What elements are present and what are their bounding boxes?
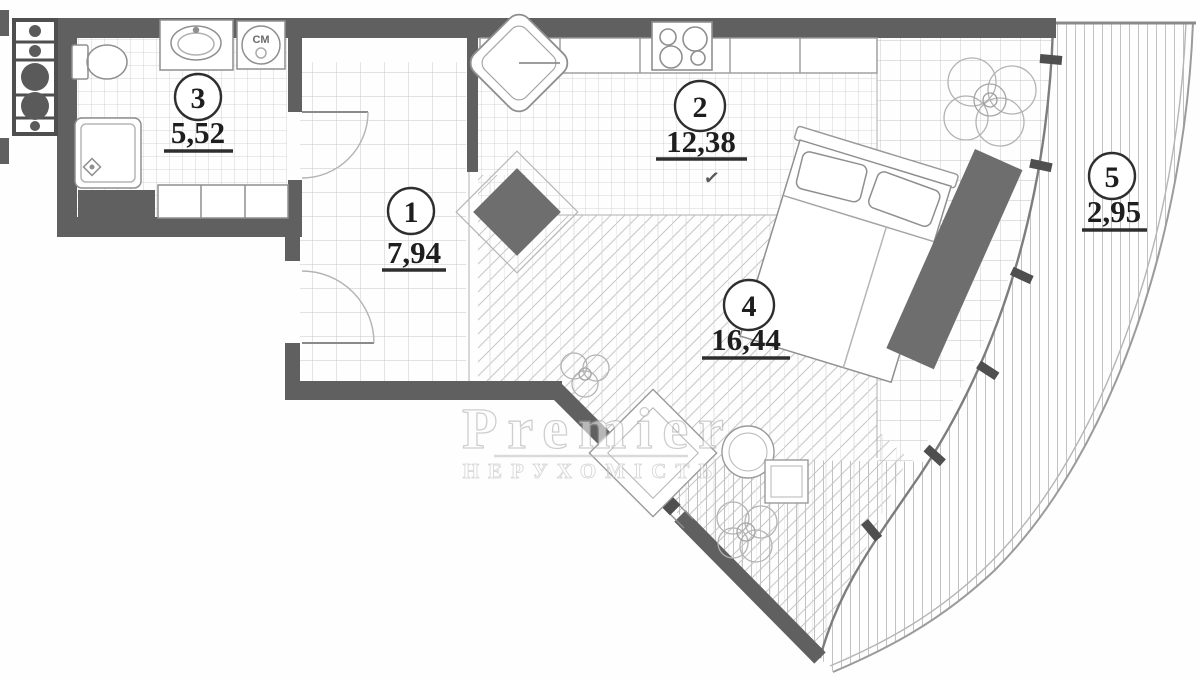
watermark-tagline: НЕРУХОМІСТЬ	[463, 459, 722, 483]
watermark-brand: Premier	[462, 396, 734, 461]
room-2-area: 12,38	[666, 124, 736, 159]
floor-plan-page: Premier НЕРУХОМІСТЬ 1 7,94 2 12,38 ✓ 3 5…	[0, 0, 1200, 680]
bathroom-wall-block	[78, 190, 155, 219]
vent-circle-large-2	[21, 92, 49, 120]
bathroom-right-wall-lower	[288, 180, 302, 237]
room-1-area: 7,94	[387, 235, 441, 270]
sink-vanity	[160, 20, 233, 70]
checkmark: ✓	[702, 167, 721, 190]
hallway-left-wall-upper	[285, 237, 300, 261]
vent-circle-large-1	[21, 63, 49, 91]
washing-machine-label: СМ	[253, 34, 270, 46]
vent-circle-small-3	[30, 121, 40, 131]
floor-plan-svg: Premier НЕРУХОМІСТЬ 1 7,94 2 12,38 ✓ 3 5…	[0, 0, 1200, 680]
toilet	[72, 45, 127, 79]
bathroom-right-wall-upper	[288, 38, 302, 112]
hallway-floor	[300, 62, 466, 381]
floor-textures	[75, 0, 1200, 680]
shower-tray	[75, 118, 141, 188]
room-1-number: 1	[404, 196, 419, 229]
room-3-number: 3	[191, 82, 206, 115]
edge-stub-top	[0, 10, 9, 36]
room-4-number: 4	[742, 290, 757, 323]
room-5-number: 5	[1105, 161, 1120, 194]
stool-square	[765, 460, 808, 503]
watermark: Premier НЕРУХОМІСТЬ	[462, 396, 734, 483]
bathroom-bottom-wall	[57, 217, 302, 237]
service-shaft	[14, 20, 56, 134]
room-5-area: 2,95	[1087, 194, 1141, 229]
room-4-area: 16,44	[711, 322, 781, 357]
edge-stub-bottom	[0, 138, 9, 164]
room-2-number: 2	[693, 91, 708, 124]
room-3-area: 5,52	[171, 115, 225, 150]
vent-circle-small-2	[29, 45, 41, 57]
stove	[652, 22, 712, 70]
bathroom-cabinet	[158, 185, 288, 218]
vent-circle-small-1	[29, 25, 41, 37]
